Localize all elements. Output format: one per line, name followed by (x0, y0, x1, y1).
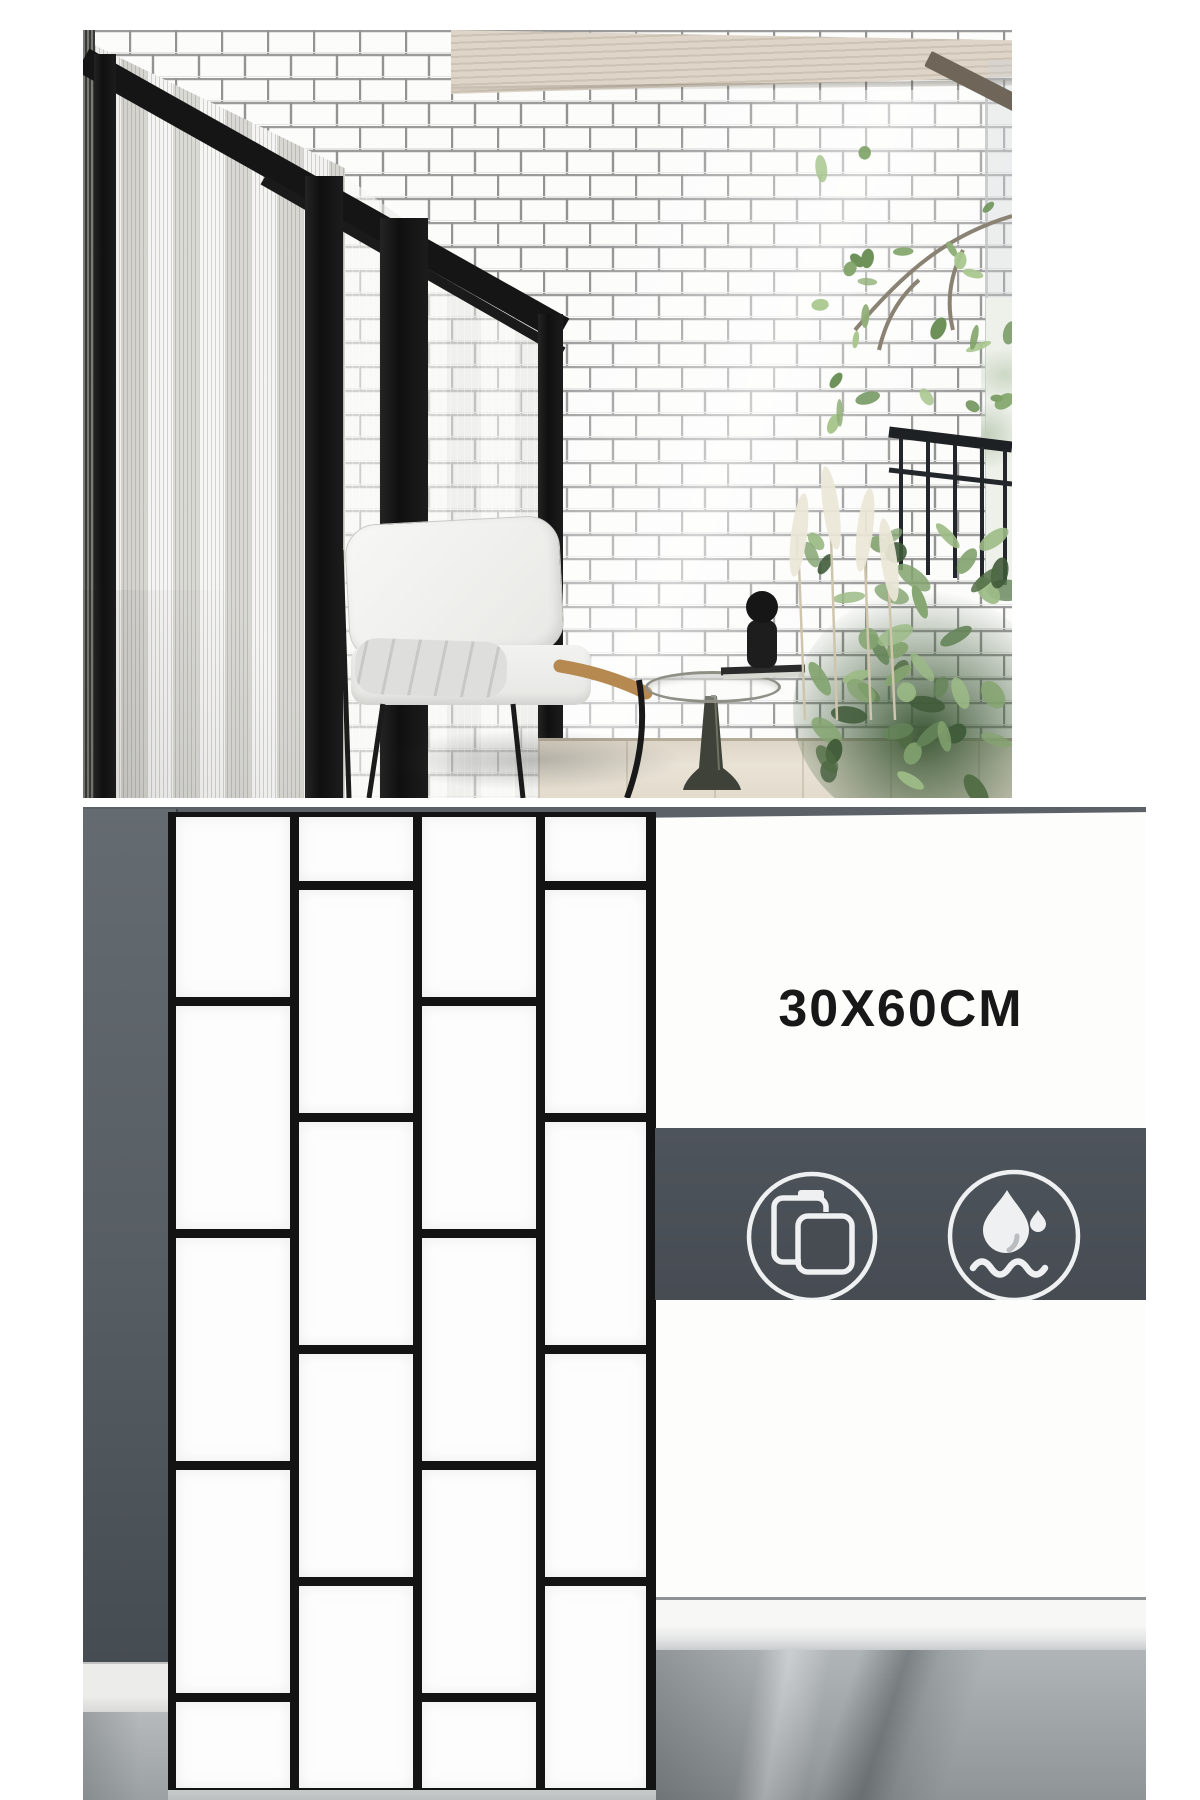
product-listing-image: 30X60CM (0, 0, 1200, 1800)
marble-floor (656, 1650, 1146, 1800)
tile-copy-icon (749, 1174, 875, 1300)
tile-cell (545, 817, 646, 881)
tile-cell (545, 890, 646, 1113)
photo-vignette (83, 590, 413, 798)
size-label: 30X60CM (656, 979, 1146, 1039)
tile-cell (299, 1354, 413, 1577)
marble-floor (83, 1712, 178, 1800)
tile-cell (299, 890, 413, 1113)
tile-cell (176, 817, 290, 997)
tile-cell (176, 1702, 290, 1788)
tile-cell (545, 1586, 646, 1788)
tile-cell (422, 1702, 536, 1788)
tile-cell (176, 1238, 290, 1461)
branch-leaves (811, 146, 1012, 436)
baseboard (83, 1662, 178, 1712)
product-spec-graphic: 30X60CM (83, 807, 1146, 1800)
tile-cell (422, 1238, 536, 1461)
baseboard (656, 1597, 1146, 1650)
tile-cell (299, 1586, 413, 1788)
tile-cell (176, 1006, 290, 1229)
tile-cell (299, 1122, 413, 1345)
feature-banner (655, 1128, 1146, 1300)
tile-cell (422, 1470, 536, 1693)
tile-cell (422, 1006, 536, 1229)
balcony-photo (83, 30, 1012, 798)
tile-cell (545, 1354, 646, 1577)
gray-side-wall (83, 809, 178, 1665)
tile-cell (545, 1122, 646, 1345)
waterproof-icon (950, 1172, 1078, 1300)
tile-cell (176, 1470, 290, 1693)
tile-cell (422, 817, 536, 997)
tile-cell (299, 817, 413, 881)
